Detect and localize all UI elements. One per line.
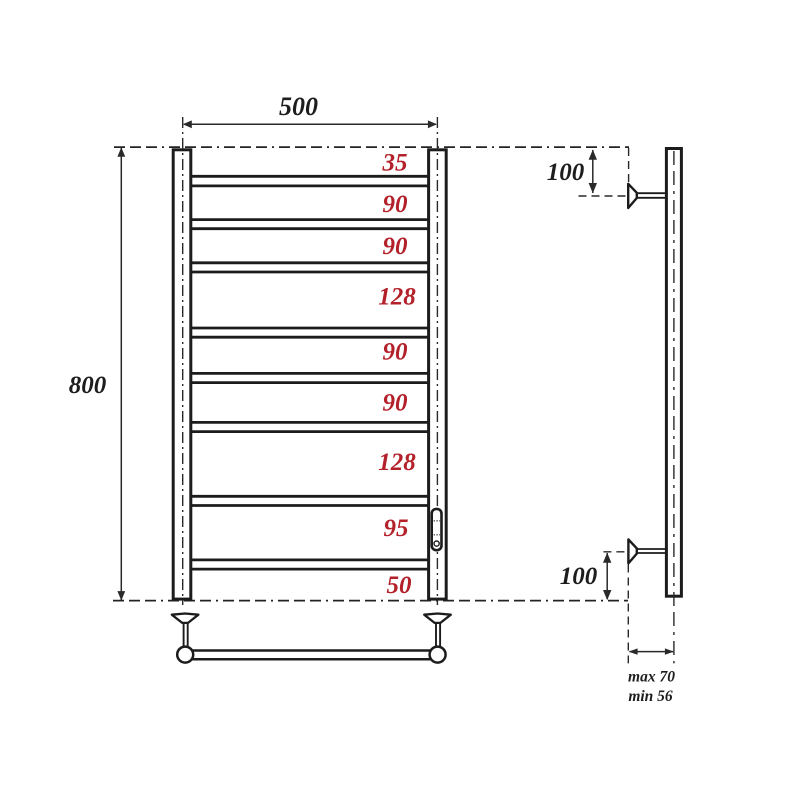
svg-text:90: 90 bbox=[383, 338, 409, 365]
svg-text:800: 800 bbox=[69, 372, 107, 399]
svg-text:90: 90 bbox=[383, 233, 409, 260]
svg-text:90: 90 bbox=[383, 191, 409, 218]
svg-text:min 56: min 56 bbox=[628, 688, 673, 705]
svg-text:128: 128 bbox=[378, 283, 416, 310]
svg-text:max 70: max 70 bbox=[628, 669, 675, 686]
svg-text:500: 500 bbox=[279, 92, 318, 121]
svg-text:95: 95 bbox=[384, 515, 409, 542]
svg-text:50: 50 bbox=[387, 572, 413, 599]
svg-text:100: 100 bbox=[547, 159, 585, 186]
svg-text:100: 100 bbox=[560, 563, 598, 590]
svg-text:35: 35 bbox=[382, 149, 408, 176]
svg-text:128: 128 bbox=[378, 449, 416, 476]
svg-text:90: 90 bbox=[383, 389, 409, 416]
